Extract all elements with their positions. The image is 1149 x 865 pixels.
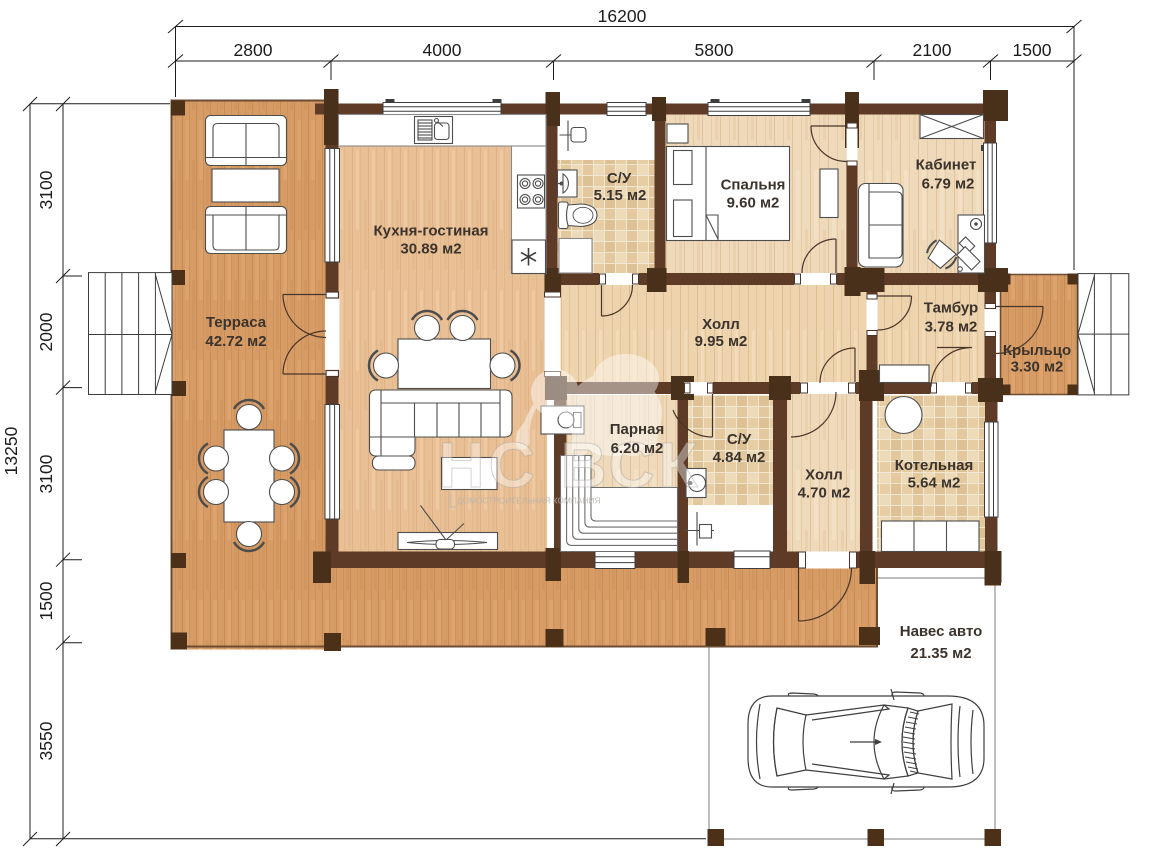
svg-text:Спальня: Спальня bbox=[721, 177, 786, 194]
svg-text:С/У: С/У bbox=[727, 431, 752, 448]
svg-text:6.20 м2: 6.20 м2 bbox=[611, 440, 664, 457]
svg-text:5.15 м2: 5.15 м2 bbox=[594, 187, 647, 204]
svg-text:21.35 м2: 21.35 м2 bbox=[910, 645, 971, 662]
svg-text:Котельная: Котельная bbox=[895, 457, 974, 474]
svg-text:ДОМОСТРОИТЕЛЬНАЯ КОМПАНИЯ: ДОМОСТРОИТЕЛЬНАЯ КОМПАНИЯ bbox=[457, 497, 600, 506]
svg-text:30.89 м2: 30.89 м2 bbox=[400, 241, 461, 258]
svg-text:Кабинет: Кабинет bbox=[916, 157, 977, 174]
svg-text:Холл: Холл bbox=[702, 316, 740, 333]
svg-text:3100: 3100 bbox=[36, 454, 56, 493]
svg-text:3.78 м2: 3.78 м2 bbox=[925, 319, 978, 336]
svg-text:2800: 2800 bbox=[234, 40, 273, 60]
svg-text:Кухня-гостиная: Кухня-гостиная bbox=[374, 223, 489, 240]
svg-text:1500: 1500 bbox=[1013, 40, 1052, 60]
svg-text:4000: 4000 bbox=[423, 40, 462, 60]
svg-text:3100: 3100 bbox=[36, 170, 56, 209]
svg-text:16200: 16200 bbox=[598, 6, 647, 26]
svg-text:6.79 м2: 6.79 м2 bbox=[922, 176, 975, 193]
svg-text:Навес авто: Навес авто bbox=[900, 623, 983, 640]
svg-text:4.84 м2: 4.84 м2 bbox=[713, 449, 766, 466]
svg-text:3.30 м2: 3.30 м2 bbox=[1011, 359, 1064, 376]
svg-text:Холл: Холл bbox=[805, 467, 843, 484]
svg-text:9.95 м2: 9.95 м2 bbox=[695, 333, 748, 350]
svg-text:42.72 м2: 42.72 м2 bbox=[205, 333, 266, 350]
svg-text:1500: 1500 bbox=[36, 581, 56, 620]
svg-text:5.64 м2: 5.64 м2 bbox=[908, 475, 961, 492]
svg-text:5800: 5800 bbox=[695, 40, 734, 60]
svg-text:С/У: С/У bbox=[607, 170, 632, 187]
svg-text:Парная: Парная bbox=[610, 421, 664, 438]
svg-text:13250: 13250 bbox=[1, 426, 21, 475]
svg-text:9.60 м2: 9.60 м2 bbox=[727, 195, 780, 212]
svg-text:Крыльцо: Крыльцо bbox=[1003, 342, 1071, 359]
svg-text:2100: 2100 bbox=[913, 40, 952, 60]
svg-text:Тамбур: Тамбур bbox=[924, 300, 978, 317]
svg-text:Терраса: Терраса bbox=[206, 314, 267, 331]
svg-text:2000: 2000 bbox=[36, 312, 56, 351]
svg-text:3550: 3550 bbox=[36, 721, 56, 760]
svg-text:4.70 м2: 4.70 м2 bbox=[798, 485, 851, 502]
